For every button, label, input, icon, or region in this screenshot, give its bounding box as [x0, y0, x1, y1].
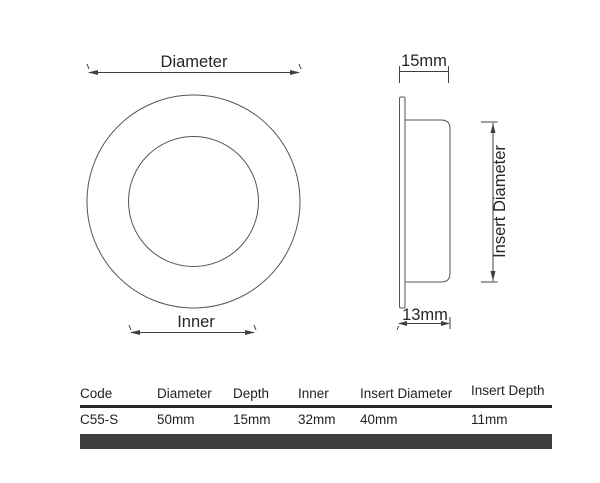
cell-code: C55-S — [80, 412, 157, 430]
diameter-label: Diameter — [161, 53, 228, 71]
header-code: Code — [80, 386, 157, 405]
insert-diameter-dimension: Insert Diameter — [481, 122, 509, 282]
technical-drawing-page: Diameter Inner 15mm — [0, 0, 600, 483]
technical-drawing: Diameter Inner 15mm — [0, 0, 600, 383]
inner-end-tick-left — [129, 325, 131, 330]
header-inner: Inner — [298, 386, 360, 405]
header-depth: Depth — [233, 386, 298, 405]
inner-dimension: Inner — [129, 313, 256, 335]
diameter-arrow-right — [290, 70, 300, 75]
body-depth-end-tick-left — [397, 326, 399, 330]
spec-table-footer-bar — [80, 434, 552, 449]
diameter-arrow-left — [88, 70, 98, 75]
insert-diameter-arrow-top — [491, 123, 496, 133]
diameter-end-tick-left — [87, 64, 89, 69]
cell-inner: 32mm — [298, 412, 360, 430]
spec-table: Code Diameter Depth Inner Insert Diamete… — [80, 386, 552, 449]
inner-arrow-left — [130, 330, 140, 335]
depth-label: 15mm — [401, 52, 447, 70]
header-insert-depth: Insert Depth — [471, 383, 552, 402]
header-insert-diameter: Insert Diameter — [360, 386, 471, 405]
cell-insert-depth: 11mm — [471, 412, 552, 430]
body-depth-label: 13mm — [402, 306, 448, 324]
inner-circle — [129, 137, 259, 267]
side-view — [400, 97, 451, 308]
inner-arrow-right — [245, 330, 255, 335]
diameter-dimension: Diameter — [87, 53, 301, 75]
front-view — [87, 95, 300, 308]
diameter-end-tick-right — [299, 64, 301, 69]
inner-label: Inner — [177, 313, 215, 331]
depth-dimension: 15mm — [400, 52, 449, 83]
insert-diameter-label: Insert Diameter — [491, 145, 509, 258]
spec-table-data-row: C55-S 50mm 15mm 32mm 40mm 11mm — [80, 408, 552, 430]
body-depth-dimension: 13mm — [397, 306, 450, 330]
flange-profile — [400, 97, 406, 308]
cell-depth: 15mm — [233, 412, 298, 430]
cell-insert-diameter: 40mm — [360, 412, 471, 430]
inner-end-tick-right — [254, 325, 256, 330]
outer-circle — [87, 95, 300, 308]
insert-diameter-arrow-bottom — [491, 271, 496, 281]
cell-diameter: 50mm — [157, 412, 233, 430]
header-diameter: Diameter — [157, 386, 233, 405]
body-profile — [405, 120, 450, 282]
spec-table-header-row: Code Diameter Depth Inner Insert Diamete… — [80, 386, 552, 408]
